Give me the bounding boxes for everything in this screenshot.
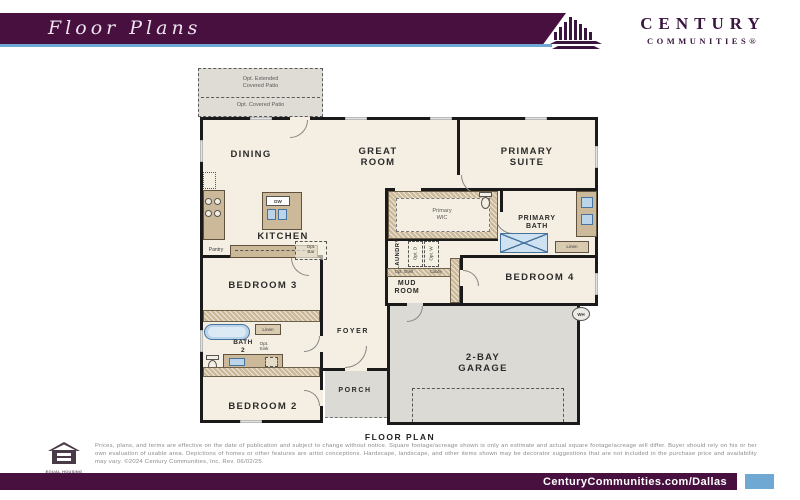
page-title: Floor Plans <box>48 17 201 39</box>
bedroom4-closet <box>450 258 460 303</box>
header-accent-line <box>0 44 552 47</box>
opt-extended-patio-label: Opt. Extended Covered Patio <box>208 76 313 89</box>
dishwasher-label: DW <box>267 199 289 204</box>
opt-washer-label: Opt. W <box>429 241 434 267</box>
wall <box>577 303 580 425</box>
wall <box>457 117 460 175</box>
foyer-label: FOYER <box>328 328 378 336</box>
stove-burner <box>214 210 221 217</box>
stove-burner <box>205 210 212 217</box>
stove-burner <box>214 198 221 205</box>
window <box>345 117 367 120</box>
bedroom3-label: BEDROOM 3 <box>213 280 313 291</box>
floor-plan-page: Floor Plans CENTURY COMMUNITIES® Opt. Ex… <box>0 0 800 500</box>
kitchen-label: KITCHEN <box>243 231 323 242</box>
primary-bath-label: PRIMARY BATH <box>507 215 567 232</box>
window <box>200 140 203 162</box>
linen-label: Linen <box>256 327 280 332</box>
opt-bar-label: Opt. Bar <box>296 244 326 255</box>
bedroom4-label: BEDROOM 4 <box>490 272 590 283</box>
primary-wic-label: Primary WIC <box>412 208 472 221</box>
stove-burner <box>205 198 212 205</box>
island-sink <box>267 209 276 220</box>
skyline-icon <box>550 10 602 50</box>
great-room-label: GREAT ROOM <box>348 146 408 168</box>
website-link[interactable]: CenturyCommunities.com/Dallas <box>543 476 727 488</box>
toilet <box>481 197 490 209</box>
island-sink <box>278 209 287 220</box>
window <box>525 117 547 120</box>
wall <box>200 117 203 423</box>
porch-label: PORCH <box>330 387 380 395</box>
pantry-label: Pantry <box>201 248 231 254</box>
water-heater: WH <box>572 307 590 321</box>
window <box>240 420 262 423</box>
opt-sink-label: Opt. Sink <box>252 341 276 352</box>
bathtub-basin <box>208 327 246 337</box>
door-gap <box>320 336 323 352</box>
bedroom2-label: BEDROOM 2 <box>213 401 313 412</box>
footer-accent-square <box>745 474 774 489</box>
garage-label: 2-BAY GARAGE <box>443 352 523 374</box>
mud-room-label: MUD ROOM <box>377 280 437 297</box>
vanity-sink <box>229 358 245 366</box>
opt-sink-outline <box>265 357 278 367</box>
shower <box>500 233 548 253</box>
window <box>595 146 598 168</box>
patio-divider <box>201 97 320 98</box>
floor-plan-drawing: Opt. Extended Covered Patio Opt. Covered… <box>195 58 607 432</box>
opt-dryer-label: Opt. D <box>413 241 418 267</box>
brand-name: CENTURY <box>608 14 798 34</box>
linen-label: Linen <box>556 244 588 249</box>
wall <box>500 190 503 212</box>
window <box>595 273 598 295</box>
vanity-sink <box>581 197 593 208</box>
door-gap <box>320 390 323 406</box>
wall <box>387 303 390 425</box>
opt-shelf-label: Opt. Shelf <box>388 270 420 275</box>
bedroom2-closet <box>203 367 320 377</box>
window <box>250 117 272 120</box>
bedroom3-closet <box>203 310 320 322</box>
cabinet-outline <box>203 172 216 189</box>
dishwasher: DW <box>266 196 290 206</box>
brand-logo: CENTURY COMMUNITIES® <box>548 8 798 54</box>
equal-housing-icon <box>47 442 81 464</box>
footer-bar: CenturyCommunities.com/Dallas <box>0 473 737 490</box>
disclaimer-text: Prices, plans, and terms are effective o… <box>95 443 757 466</box>
window <box>430 117 452 120</box>
opt-covered-patio-label: Opt. Covered Patio <box>208 102 313 109</box>
water-heater-label: WH <box>573 312 589 317</box>
dining-label: DINING <box>221 149 281 160</box>
primary-suite-label: PRIMARY SUITE <box>492 146 562 168</box>
door-gap <box>345 368 367 371</box>
vanity-sink <box>581 214 593 225</box>
window <box>200 330 203 352</box>
brand-subtitle: COMMUNITIES® <box>608 36 798 46</box>
floor-plan-caption: FLOOR PLAN <box>0 432 800 442</box>
garage-door-outline <box>412 388 564 422</box>
wall <box>460 255 598 258</box>
wall <box>387 422 580 425</box>
cubby-label: Cubby <box>421 270 451 275</box>
